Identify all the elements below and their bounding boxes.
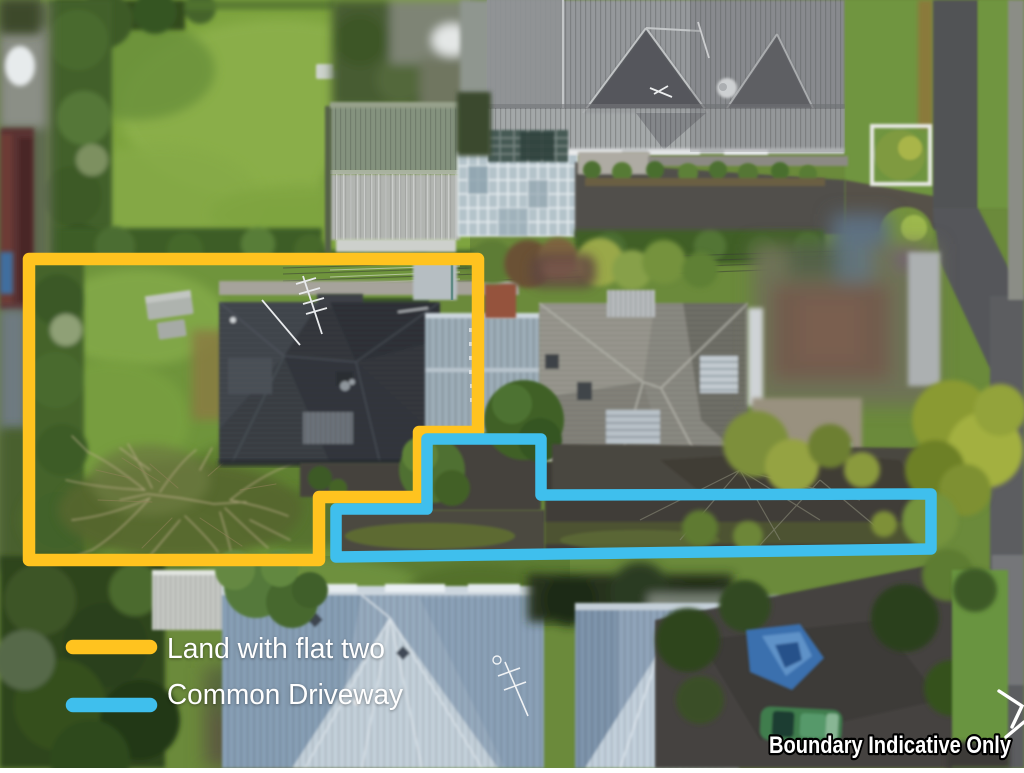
svg-text:Boundary Indicative Only: Boundary Indicative Only: [769, 732, 1011, 759]
svg-text:Common Driveway: Common Driveway: [167, 679, 404, 711]
svg-text:Land with flat two: Land with flat two: [167, 633, 385, 665]
